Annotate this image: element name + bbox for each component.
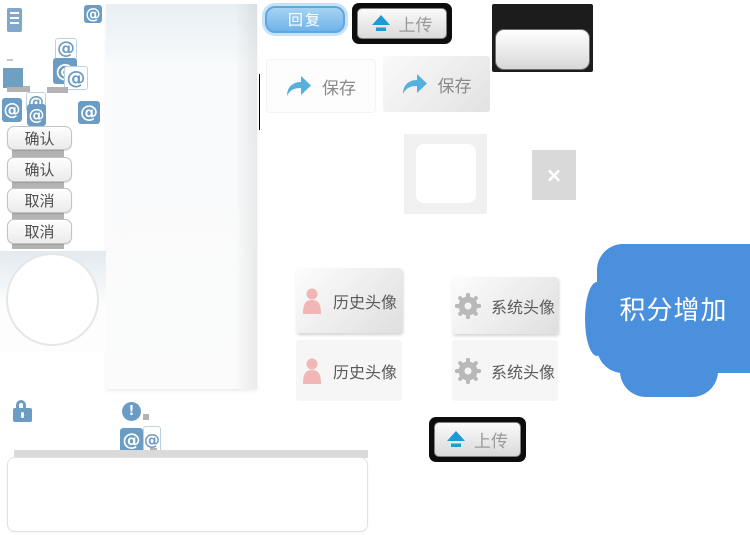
text-input-box[interactable]	[7, 457, 368, 532]
thumbnail-placeholder	[416, 144, 476, 203]
upload-button[interactable]: 上传	[429, 417, 526, 462]
upload-button-label: 上传	[399, 11, 433, 36]
at-mention-icon: @	[78, 101, 100, 124]
at-mention-icon: @	[2, 98, 22, 122]
at-mention-icon: @	[84, 5, 102, 23]
panel-edge-shade	[235, 4, 257, 389]
save-button[interactable]: 保存	[383, 56, 490, 112]
share-arrow-icon	[402, 73, 428, 95]
gray-dash	[7, 59, 13, 61]
system-avatar-button[interactable]: 系统头像	[452, 277, 558, 334]
system-avatar-button[interactable]: 系统头像	[452, 340, 558, 401]
cancel-button[interactable]: 取消	[7, 188, 72, 213]
confirm-button[interactable]: 确认	[7, 126, 72, 150]
at-mention-icon: @	[27, 104, 46, 126]
points-increase-bubble: 积分增加	[597, 244, 750, 373]
history-avatar-button[interactable]: 历史头像	[296, 268, 402, 333]
upload-button-label: 上传	[474, 427, 508, 452]
points-increase-text: 积分增加	[619, 290, 727, 327]
avatar-circle-placeholder	[6, 253, 99, 346]
person-icon	[301, 288, 323, 314]
reply-button[interactable]: 回复	[265, 6, 345, 33]
share-arrow-icon	[286, 75, 312, 97]
save-button-label: 保存	[322, 74, 356, 99]
gray-square	[23, 86, 30, 92]
gray-square	[143, 414, 149, 420]
close-button[interactable]: ×	[532, 150, 576, 200]
system-avatar-label: 系统头像	[491, 294, 555, 318]
history-avatar-label: 历史头像	[333, 359, 397, 383]
sprite-sheet-canvas: @ @ @ @ @ @ @ @ @ @ 确认 确认 取消 取消 回复 上传 保存	[0, 0, 750, 535]
divider-line	[259, 74, 260, 130]
exclamation-icon: !	[122, 402, 141, 421]
at-mention-icon: @	[55, 38, 77, 60]
close-icon: ×	[546, 163, 563, 187]
person-icon	[301, 358, 323, 384]
upload-arrow-icon	[447, 431, 465, 449]
upload-button[interactable]: 上传	[352, 3, 452, 44]
save-button[interactable]: 保存	[267, 60, 375, 112]
black-toolbar-panel	[492, 4, 593, 72]
history-avatar-button[interactable]: 历史头像	[296, 340, 402, 401]
lock-icon	[13, 400, 32, 422]
upload-arrow-icon	[372, 15, 390, 33]
menu-page-icon	[7, 8, 22, 32]
exclamation-glyph: !	[129, 404, 135, 419]
blue-square-swatch	[3, 68, 23, 88]
cancel-button[interactable]: 取消	[7, 219, 72, 244]
history-avatar-label: 历史头像	[333, 289, 397, 313]
gray-bar	[47, 87, 68, 93]
blank-white-button[interactable]	[495, 29, 590, 70]
gear-icon	[455, 293, 481, 319]
confirm-button[interactable]: 确认	[7, 157, 72, 182]
list-panel	[106, 4, 257, 389]
thumbnail-frame	[404, 134, 487, 214]
gear-icon	[455, 358, 481, 384]
system-avatar-label: 系统头像	[491, 359, 555, 383]
save-button-label: 保存	[438, 72, 472, 97]
